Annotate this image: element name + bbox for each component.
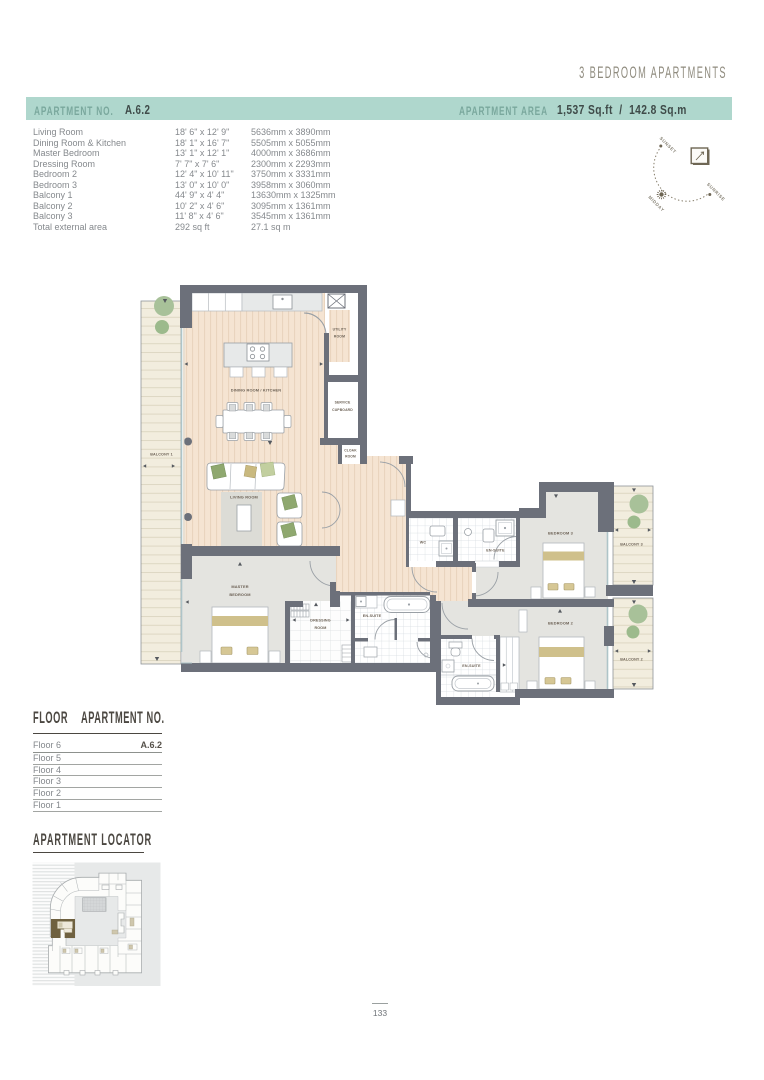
svg-text:DINING ROOM / KITCHEN: DINING ROOM / KITCHEN [231,388,282,393]
svg-text:LIVING ROOM: LIVING ROOM [230,495,258,500]
svg-text:BEDROOM 2: BEDROOM 2 [548,621,574,626]
svg-text:ROOM: ROOM [314,626,326,630]
svg-text:BALCONY 2: BALCONY 2 [620,658,643,662]
svg-text:EN-SUITE: EN-SUITE [486,549,505,553]
svg-text:EN-SUITE: EN-SUITE [363,614,382,618]
svg-text:CLOAK: CLOAK [344,449,357,453]
svg-text:ROOM: ROOM [345,455,356,459]
svg-text:WC: WC [420,541,427,545]
svg-text:MASTER: MASTER [231,584,248,589]
svg-text:SERVICE: SERVICE [335,401,351,405]
svg-text:EN-SUITE: EN-SUITE [462,664,481,668]
svg-text:BALCONY 3: BALCONY 3 [620,543,643,547]
svg-text:UTILITY: UTILITY [333,328,347,332]
svg-text:ROOM: ROOM [334,335,345,339]
svg-text:SUNRISE: SUNRISE [706,182,726,202]
svg-text:DRESSING: DRESSING [310,619,330,623]
svg-text:BEDROOM 3: BEDROOM 3 [548,531,574,536]
svg-text:BALCONY 1: BALCONY 1 [150,453,173,457]
svg-text:BEDROOM: BEDROOM [229,592,250,597]
svg-text:CUPBOARD: CUPBOARD [332,408,353,412]
